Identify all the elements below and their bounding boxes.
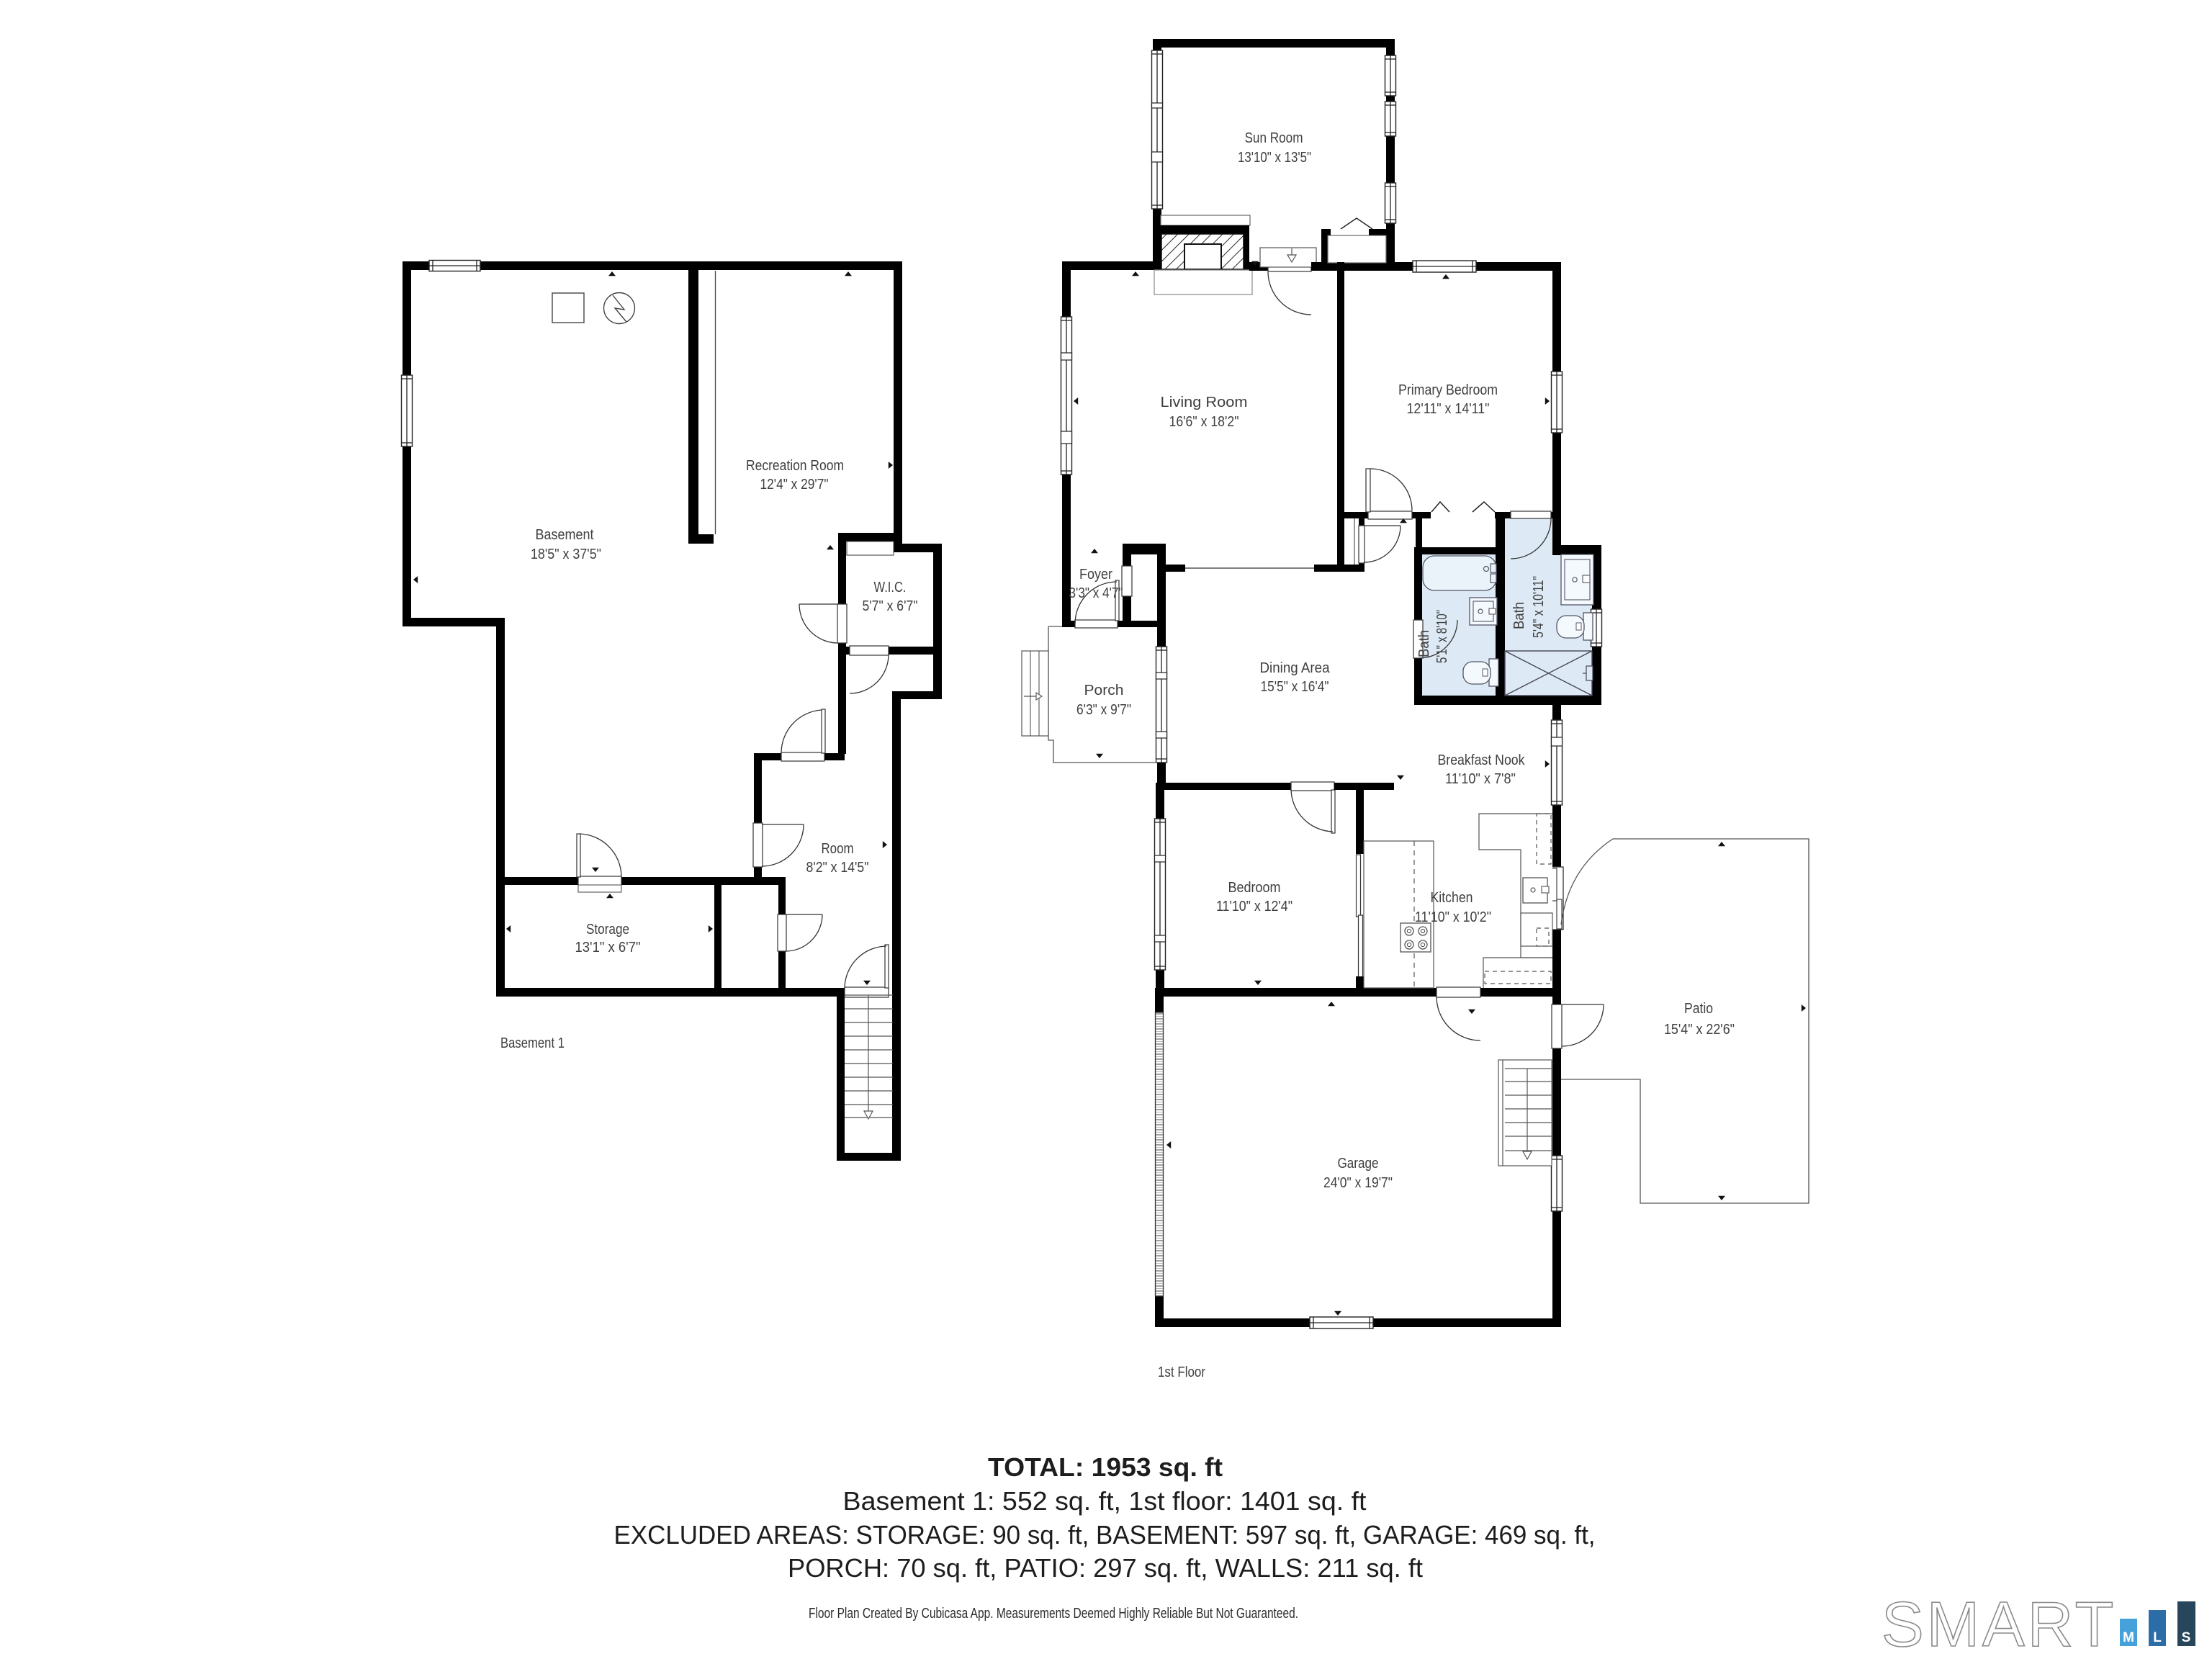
svg-text:M: M — [2123, 1630, 2134, 1645]
svg-text:SMART: SMART — [1881, 1588, 2116, 1659]
svg-text:Room: Room — [822, 840, 854, 857]
svg-text:Bath: Bath — [1511, 602, 1527, 629]
svg-text:15'4" x 22'6": 15'4" x 22'6" — [1664, 1021, 1735, 1038]
svg-text:EXCLUDED AREAS: STORAGE: 90 sq: EXCLUDED AREAS: STORAGE: 90 sq. ft, BASE… — [614, 1520, 1596, 1550]
svg-text:13'1" x 6'7": 13'1" x 6'7" — [575, 939, 641, 956]
svg-text:S: S — [2182, 1630, 2191, 1645]
svg-text:Sun Room: Sun Room — [1245, 130, 1303, 146]
svg-text:16'6" x 18'2": 16'6" x 18'2" — [1169, 413, 1239, 430]
svg-text:5'4" x 10'11": 5'4" x 10'11" — [1530, 576, 1547, 638]
svg-text:Basement 1: 552 sq. ft, 1st fl: Basement 1: 552 sq. ft, 1st floor: 1401 … — [843, 1486, 1367, 1516]
svg-text:24'0" x 19'7": 24'0" x 19'7" — [1323, 1174, 1393, 1191]
svg-text:Patio: Patio — [1684, 1000, 1713, 1017]
svg-text:15'5" x 16'4": 15'5" x 16'4" — [1261, 678, 1329, 695]
svg-text:Breakfast Nook: Breakfast Nook — [1438, 752, 1526, 768]
svg-text:5'7" x 6'7": 5'7" x 6'7" — [863, 598, 918, 614]
svg-text:11'10" x 7'8": 11'10" x 7'8" — [1445, 770, 1516, 787]
svg-text:Basement 1: Basement 1 — [500, 1035, 565, 1051]
svg-text:Kitchen: Kitchen — [1431, 889, 1473, 906]
svg-text:11'10" x 12'4": 11'10" x 12'4" — [1216, 898, 1292, 914]
svg-text:13'10" x 13'5": 13'10" x 13'5" — [1238, 149, 1311, 166]
svg-text:Living Room: Living Room — [1161, 394, 1248, 410]
svg-text:Dining Area: Dining Area — [1260, 660, 1331, 676]
svg-text:8'2" x 14'5": 8'2" x 14'5" — [806, 859, 869, 876]
svg-text:Primary Bedroom: Primary Bedroom — [1398, 382, 1498, 398]
svg-text:TOTAL: 1953 sq. ft: TOTAL: 1953 sq. ft — [988, 1452, 1223, 1482]
svg-text:12'4" x 29'7": 12'4" x 29'7" — [760, 476, 829, 493]
svg-text:12'11" x 14'11": 12'11" x 14'11" — [1407, 400, 1490, 417]
svg-text:18'5" x 37'5": 18'5" x 37'5" — [531, 546, 601, 562]
svg-text:11'10" x 10'2": 11'10" x 10'2" — [1415, 909, 1491, 925]
svg-text:Bath: Bath — [1416, 630, 1432, 657]
svg-text:Bedroom: Bedroom — [1228, 879, 1281, 896]
svg-text:Porch: Porch — [1084, 682, 1124, 698]
svg-text:L: L — [2153, 1630, 2162, 1645]
svg-text:PORCH: 70 sq. ft, PATIO: 297 s: PORCH: 70 sq. ft, PATIO: 297 sq. ft, WAL… — [788, 1553, 1423, 1583]
svg-text:Foyer: Foyer — [1079, 566, 1112, 583]
svg-text:Basement: Basement — [536, 526, 594, 543]
svg-text:Floor Plan Created By Cubicasa: Floor Plan Created By Cubicasa App. Meas… — [809, 1606, 1298, 1622]
svg-text:5'1" x 8'10": 5'1" x 8'10" — [1434, 610, 1450, 663]
svg-text:Storage: Storage — [586, 921, 629, 938]
svg-text:W.I.C.: W.I.C. — [874, 579, 907, 595]
svg-text:3'3" x 4'7": 3'3" x 4'7" — [1069, 585, 1123, 601]
svg-text:Recreation Room: Recreation Room — [746, 457, 844, 474]
svg-text:6'3" x 9'7": 6'3" x 9'7" — [1076, 701, 1131, 718]
svg-text:Garage: Garage — [1338, 1155, 1379, 1172]
svg-text:1st Floor: 1st Floor — [1158, 1364, 1205, 1380]
